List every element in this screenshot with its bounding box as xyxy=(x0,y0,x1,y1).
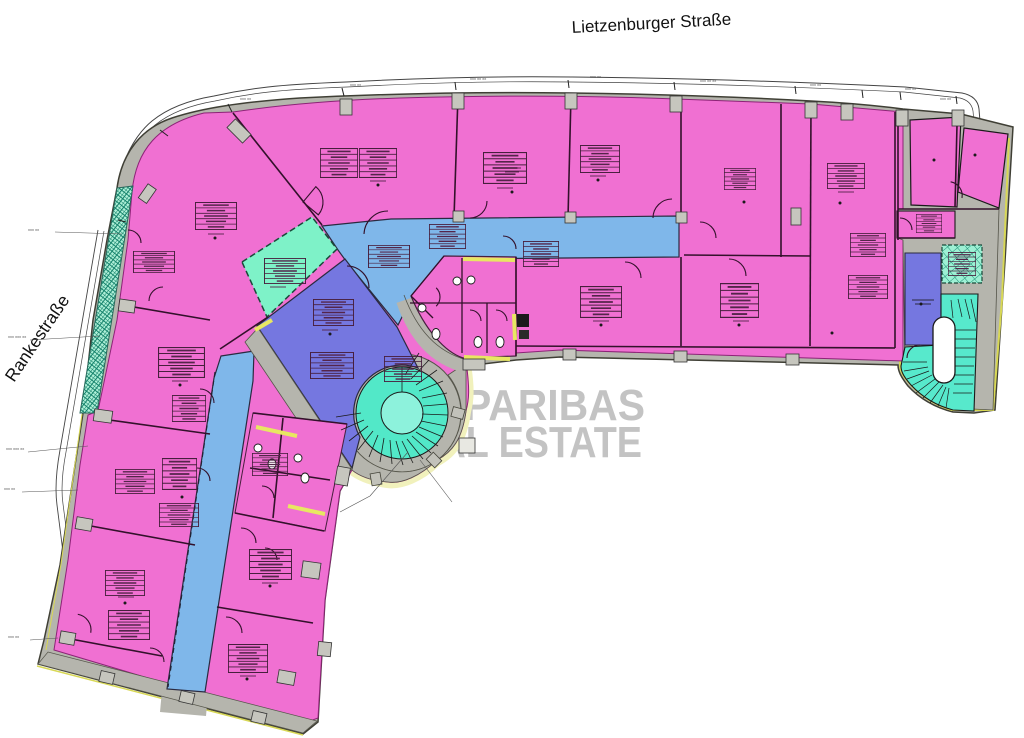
svg-text:xxx xx: xxx xx xyxy=(810,82,821,87)
svg-text:xxx xx: xxx xx xyxy=(905,86,916,91)
svg-text:xxx xxx xx: xxx xxx xx xyxy=(8,334,26,339)
svg-text:xxx xx: xxx xx xyxy=(28,227,39,232)
svg-text:xxx xx: xxx xx xyxy=(940,96,951,101)
svg-text:xxx xx xx: xxx xx xx xyxy=(700,78,716,83)
svg-text:xxx xx: xxx xx xyxy=(8,634,19,639)
svg-text:xxx xxx xx: xxx xxx xx xyxy=(6,446,24,451)
svg-text:xxx xx: xxx xx xyxy=(4,486,15,491)
svg-text:xxx xx: xxx xx xyxy=(590,74,601,79)
svg-text:xxx xx xx: xxx xx xx xyxy=(470,76,486,81)
svg-text:xxx xx: xxx xx xyxy=(350,82,361,87)
svg-text:xxx xx: xxx xx xyxy=(240,96,251,101)
